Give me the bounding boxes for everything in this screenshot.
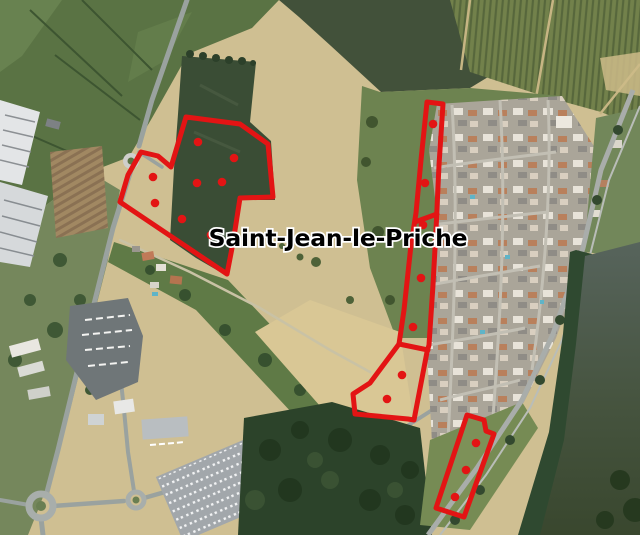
central-strip-point-marker[interactable]	[417, 274, 426, 283]
west-parcel-point-marker[interactable]	[194, 138, 203, 147]
west-parcel-point-marker[interactable]	[218, 178, 227, 187]
west-parcel-point-marker[interactable]	[151, 199, 160, 208]
west-parcel-point-marker[interactable]	[178, 215, 187, 224]
place-label: Saint-Jean-le-Priche	[209, 224, 468, 252]
west-parcel-point-marker[interactable]	[230, 154, 239, 163]
riverside-parcel-point-marker[interactable]	[472, 439, 481, 448]
west-parcel-point-marker[interactable]	[193, 179, 202, 188]
satellite-basemap	[0, 0, 640, 535]
central-strip-point-marker[interactable]	[429, 120, 438, 129]
central-strip-point-marker[interactable]	[409, 323, 418, 332]
central-strip-point-marker[interactable]	[398, 371, 407, 380]
central-strip-point-marker[interactable]	[383, 395, 392, 404]
riverside-parcel-point-marker[interactable]	[462, 466, 471, 475]
riverside-parcel-point-marker[interactable]	[451, 493, 460, 502]
west-parcel-point-marker[interactable]	[149, 173, 158, 182]
central-strip-point-marker[interactable]	[421, 179, 430, 188]
map-viewport[interactable]: Saint-Jean-le-Priche	[0, 0, 640, 535]
